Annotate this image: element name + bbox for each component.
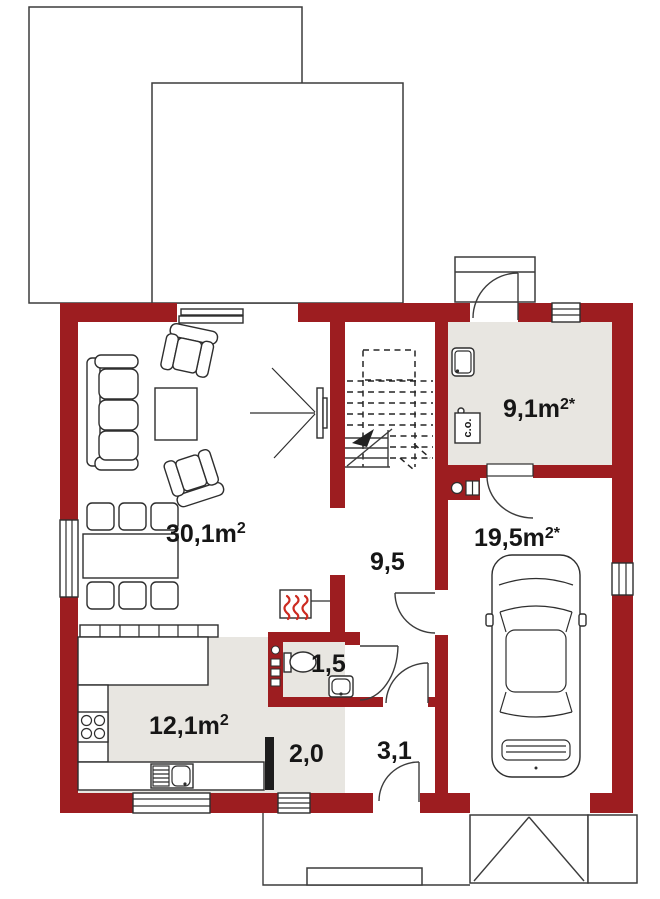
coffee-table [155,388,197,440]
stairs-stringers [363,380,415,467]
armchair-bottom [163,448,225,509]
flue-circle [452,483,463,494]
dining-chair [119,503,146,530]
car-mirror [579,614,586,626]
window-right-garage [612,563,633,595]
car [486,555,586,777]
wall-vestibule-stub-2 [428,697,448,707]
car-mirror [486,614,493,626]
wc-wall-fitting [271,679,280,686]
wall-top-3 [518,303,552,322]
wall-left-1 [60,303,78,520]
tv-mount [323,398,327,428]
fireplace [280,590,330,619]
upper-floor-outline [152,83,403,303]
dining-chair [87,582,114,609]
label-wc: 1,5 [311,650,346,678]
bar-counter [80,625,218,637]
driveway-side-slab [588,815,637,883]
door-utility-garage [487,464,533,518]
dining-chair [151,582,178,609]
tv-unit [250,368,327,458]
label-corridor: 2,0 [289,740,324,768]
label-garage: 19,5m2* [474,524,561,552]
wall-utility-garage-1 [448,465,487,478]
floor-plan-svg: c.o. 30,1m2 9,5 1,5 12,1m2 2,0 3,1 9,1m2… [0,0,660,899]
door-hall-vestibule [386,663,428,703]
wall-stair-left-2 [330,575,345,632]
dining-chair [87,503,114,530]
door-main-entrance [379,762,419,802]
wall-bottom-2 [210,793,278,813]
sofa [87,355,138,470]
wall-right-2 [612,595,633,813]
washbasin [329,676,353,697]
washing-machine [452,348,474,376]
window-corridor-vent [278,793,310,813]
wall-hall-garage-2 [435,635,448,793]
wall-top-2 [298,303,470,322]
wall-hall-garage-1 [435,322,448,590]
terrace-opening-sill [179,309,243,323]
door-wc [360,646,398,700]
stairs-upper-treads [347,381,433,425]
wall-wc-right-1 [345,632,360,645]
label-hall: 9,5 [370,548,405,576]
boiler: c.o. [455,408,480,443]
stairs [345,350,433,470]
label-living-room: 30,1m2 [166,520,246,548]
tv-screen [317,388,323,438]
dining-chair [119,582,146,609]
entrance-step [307,868,422,885]
stairs-upper-landing [363,350,415,380]
wc-wall-fitting [272,646,280,654]
wc-wall-fitting [271,669,280,676]
armchair-top [160,322,219,378]
label-kitchen: 12,1m2 [149,712,229,740]
wc-wall-fitting [271,659,280,666]
window-kitchen [133,793,210,813]
driveway [470,815,588,883]
wall-vestibule-stub-1 [360,697,383,707]
tv-view-rays [250,368,315,458]
wall-bottom-4 [420,793,470,813]
wall-bottom-5 [590,793,633,813]
wall-left-2 [60,597,78,813]
door-hall-garage [395,593,435,633]
living-room-furniture [83,322,330,619]
dining-table [83,534,178,578]
wall-bottom-3 [310,793,373,813]
wall-bottom-1 [60,793,133,813]
wall-right-1 [612,303,633,563]
dining-set [83,503,178,609]
window-top-utility [552,303,580,322]
boiler-label: c.o. [462,419,474,438]
wall-stair-left-1 [330,322,345,508]
tall-cabinet [265,737,274,790]
kitchen-counter-top [78,637,208,685]
wall-utility-garage-2 [533,465,612,478]
label-vestibule: 3,1 [377,737,412,765]
stove [78,712,108,742]
wall-wc-right-2 [345,700,360,707]
kitchen-sink [151,764,193,788]
window-left [60,520,78,597]
